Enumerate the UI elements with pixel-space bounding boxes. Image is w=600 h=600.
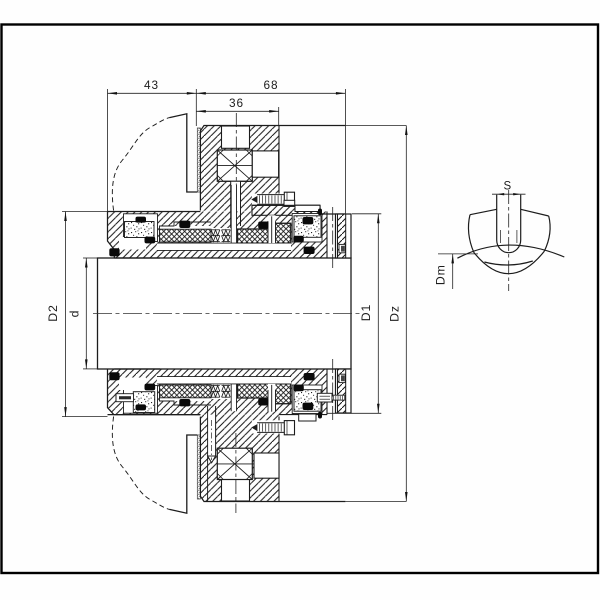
svg-text:43: 43 xyxy=(144,78,159,92)
svg-text:D2: D2 xyxy=(46,304,60,322)
svg-text:D1: D1 xyxy=(359,304,373,322)
svg-text:Dm: Dm xyxy=(433,264,447,285)
svg-text:68: 68 xyxy=(264,78,279,92)
svg-text:Dz: Dz xyxy=(387,305,401,322)
svg-text:S: S xyxy=(504,181,513,193)
svg-text:36: 36 xyxy=(229,96,244,110)
svg-text:d: d xyxy=(68,310,82,318)
